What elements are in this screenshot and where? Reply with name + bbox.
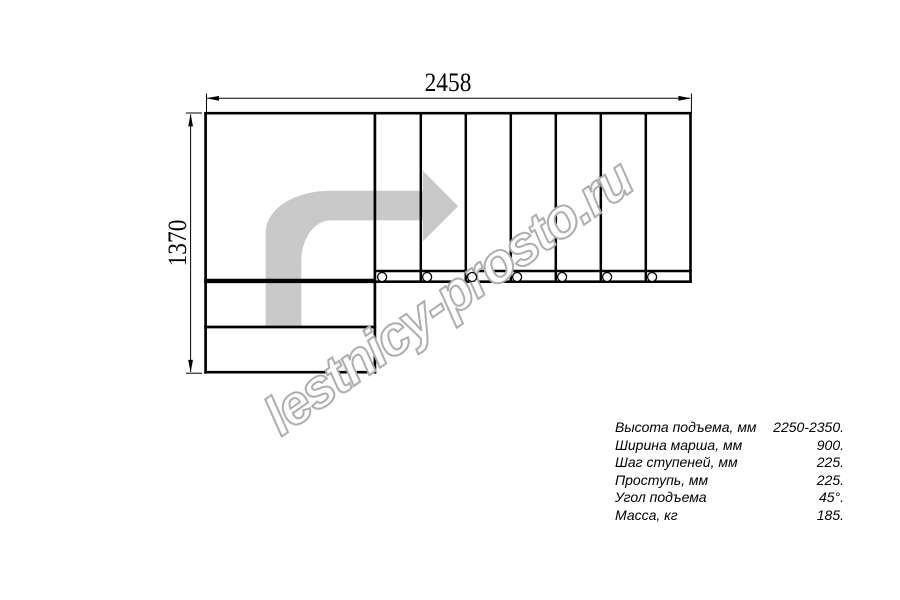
svg-text:lestnicy-prosto.ru: lestnicy-prosto.ru <box>252 147 644 447</box>
svg-text:2458: 2458 <box>425 69 472 97</box>
svg-text:1370: 1370 <box>164 220 192 267</box>
